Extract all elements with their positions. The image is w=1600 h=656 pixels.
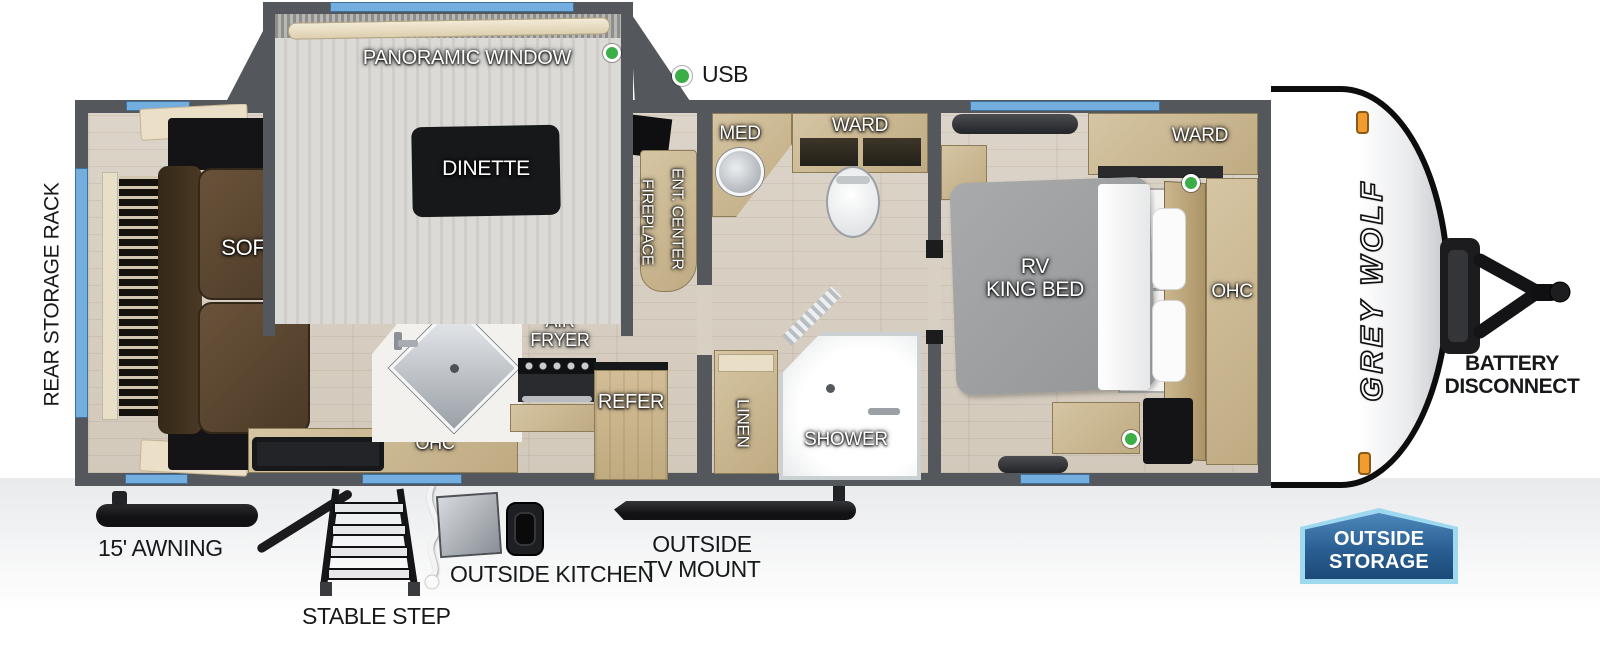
bathroom-door-gap <box>697 285 712 355</box>
sink-drain <box>450 364 459 373</box>
bedroom-ward-label: WARD <box>1140 126 1260 147</box>
outside-kitchen-griddle <box>436 492 502 558</box>
stable-step-label: STABLE STEP <box>302 604 451 629</box>
bedroom-door-post-top <box>926 240 943 258</box>
med-label: MED <box>708 124 772 145</box>
window-bedroom-top <box>970 101 1160 111</box>
tv-mount-bar <box>614 501 856 520</box>
stove-handle <box>522 396 592 402</box>
outside-kitchen-container-inner <box>514 512 536 546</box>
fireplace-label: FIREPLACE <box>638 152 655 292</box>
bath-ward-slot-1 <box>800 138 858 166</box>
brand-logo: GREY WOLF <box>1354 130 1398 450</box>
bath-ward-label: WARD <box>800 116 920 137</box>
shower-label: SHOWER <box>796 430 896 451</box>
bedroom-tv-cabinet <box>1143 398 1193 464</box>
ohc-bedroom-label: OHC <box>1204 282 1260 303</box>
bedroom-ward-underside <box>1098 166 1223 178</box>
window-bedroom-bottom <box>1020 474 1090 484</box>
shower-faucet <box>868 408 900 415</box>
bed-pillow-2 <box>1152 300 1186 382</box>
battery-disconnect-label: BATTERY DISCONNECT <box>1424 352 1600 398</box>
ent-center-label: ENT. CENTER <box>668 142 685 296</box>
rv-king-bed-label: RV KING BED <box>955 256 1115 301</box>
sink-faucet-spout <box>398 340 418 347</box>
awning-roll <box>96 504 258 527</box>
bedroom-shade-roll-bottom <box>998 456 1068 473</box>
awning-label: 15' AWNING <box>98 536 223 561</box>
bath-ward-slot-2 <box>863 138 921 166</box>
linen-counter <box>718 354 774 372</box>
usb-port-dot-dinette <box>603 44 621 62</box>
panoramic-window-label: PANORAMIC WINDOW <box>352 48 582 70</box>
bedroom-shade-roll-top <box>952 114 1078 134</box>
refer-cabinet <box>594 370 668 480</box>
shower-drain <box>826 384 835 393</box>
magazine-rack-slats <box>119 176 158 416</box>
bedroom-door-post-bottom <box>926 330 943 344</box>
linen-label: LINEN <box>733 378 751 468</box>
bed-pillow-1 <box>1152 208 1186 290</box>
kitchen-counter-black <box>252 437 384 471</box>
panoramic-window-strip <box>330 2 574 12</box>
shower-pan <box>779 332 921 480</box>
stove-base-cabinet <box>510 404 596 432</box>
clearance-marker-bottom <box>1358 452 1371 475</box>
med-sink <box>716 148 764 196</box>
bedroom-door-gap <box>928 258 941 330</box>
awning-bracket <box>112 491 127 506</box>
usb-port-dot-ward <box>1182 174 1200 192</box>
refer-label: REFER <box>596 392 666 414</box>
rear-storage-rack-label: REAR STORAGE RACK <box>40 175 63 415</box>
hitch <box>1436 228 1576 360</box>
slide-wedge-right <box>630 12 692 104</box>
window-bottom-left <box>125 474 188 484</box>
usb-legend-label: USB <box>702 62 748 87</box>
usb-legend-dot <box>672 66 692 86</box>
rear-storage-rack-strip <box>75 168 88 418</box>
outside-tv-mount-label: OUTSIDE TV MOUNT <box>612 532 792 583</box>
toilet-lid-line <box>836 176 870 184</box>
usb-port-dot-nightstand <box>1122 430 1140 448</box>
entry-door-strip <box>362 474 462 484</box>
stable-step <box>318 487 423 599</box>
sofa-backrest <box>158 166 202 434</box>
floorplan-canvas: SOFA OHC AIR FRYER REFER FIREPLACE ENT. … <box>0 0 1600 656</box>
stove-burners <box>523 362 591 370</box>
ohc-bedroom-cabinet <box>1206 178 1258 465</box>
outside-storage-label: OUTSIDE STORAGE <box>1300 528 1458 574</box>
magazine-rack-frame <box>102 172 118 420</box>
dinette-label: DINETTE <box>412 158 560 181</box>
